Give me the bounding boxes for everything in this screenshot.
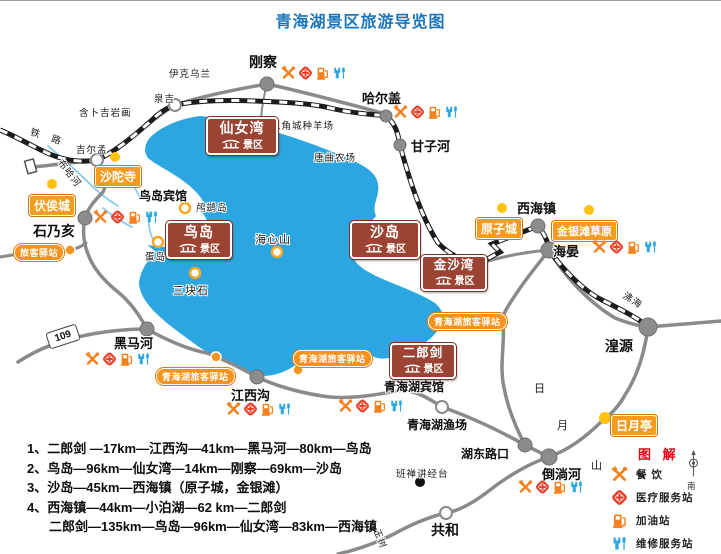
- repair-icon: [277, 401, 292, 417]
- town-label-huangyuan: 湟源: [605, 336, 633, 356]
- town-label-xihaizhen: 西海镇: [517, 198, 556, 217]
- poi-dot-yuanzicheng: [497, 203, 507, 213]
- town-label-gangcha: 刚察: [249, 52, 277, 72]
- poi-badge-yuanzicheng: 原子城: [476, 218, 522, 239]
- repair-icon: [144, 209, 159, 225]
- medical-icon: [355, 398, 370, 414]
- scenic-badge-niaodao: 鸟岛 景区: [166, 221, 232, 259]
- route-list: 1、二郎剑 —17km—江西沟—41km—黑马河—80km—鸟岛 2、鸟岛—96…: [27, 439, 377, 537]
- poi-badge-fusicheng: 伏俟城: [29, 195, 75, 216]
- fuel-icon: [372, 398, 387, 414]
- dining-icon: [518, 479, 533, 495]
- label-dandao: 蛋岛: [145, 249, 166, 263]
- label-shan: 山: [591, 457, 603, 473]
- town-dot-haergai: [380, 110, 392, 122]
- label-ri: 日: [534, 380, 546, 396]
- road-end-cap: [25, 159, 37, 174]
- label-sankuaishi: 三块石: [173, 282, 209, 298]
- label-sanjiaocheng: 三角城种羊场: [271, 118, 334, 132]
- dining-icon: [338, 398, 353, 414]
- town-label-gonghe: 共和: [431, 520, 459, 540]
- station-badge-southwest: 青海湖旅客驿站: [156, 368, 235, 385]
- town-dot-ganzihe: [394, 139, 406, 151]
- town-label-heimahe: 黑马河: [114, 333, 153, 352]
- route-line-1: 1、二郎剑 —17km—江西沟—41km—黑马河—80km—鸟岛: [27, 439, 377, 459]
- route-line-2: 2、鸟岛—96km—仙女湾—14km—刚察—69km—沙岛: [27, 459, 377, 479]
- legend-item-repair: 维修服务站: [611, 535, 694, 552]
- town-dot-gangcha: [260, 77, 274, 91]
- repair-icon: [643, 239, 658, 255]
- medical-icon: [243, 401, 258, 417]
- island-marker-haixinshan: [272, 247, 282, 257]
- medical-icon: [298, 65, 313, 81]
- poi-dot-jinyintan: [584, 205, 594, 215]
- station-dot-southwest: [211, 352, 221, 362]
- fuel-icon: [626, 239, 641, 255]
- scenic-suffix: 景区: [200, 240, 220, 255]
- temple-icon: [403, 363, 422, 373]
- services-daotanghe: [518, 479, 584, 495]
- label-tangqu: 唐曲农场: [314, 150, 356, 164]
- fuel-icon: [260, 401, 275, 417]
- scenic-badge-erlangjian: 二郎剑 景区: [390, 343, 456, 379]
- legend-label: 餐 饮: [636, 467, 663, 482]
- repair-icon: [332, 65, 347, 81]
- legend-label: 维修服务站: [636, 536, 694, 551]
- label-yuchang: 青海湖渔场: [407, 416, 467, 433]
- services-gangcha: [281, 65, 347, 81]
- compass-icon: [687, 449, 700, 479]
- road-huangyuan-daotanghe: [551, 327, 648, 456]
- repair-icon: [611, 535, 628, 552]
- poi-dot-riyueting: [599, 412, 611, 424]
- temple-icon: [221, 138, 241, 149]
- label-luciniao: 鸬鹚岛: [196, 200, 228, 214]
- fuel-icon: [127, 209, 142, 225]
- route-line-3: 3、沙岛—45km—西海镇（原子城，金银滩）: [27, 478, 377, 498]
- scenic-name: 沙岛: [370, 225, 400, 240]
- fuel-icon: [611, 512, 628, 529]
- label-banchan: 班禅讲经台: [396, 466, 449, 480]
- scenic-suffix: 景区: [243, 136, 263, 151]
- temple-icon: [364, 242, 384, 253]
- legend-title: 图 解: [638, 444, 680, 463]
- scenic-name: 仙女湾: [220, 121, 265, 136]
- fuel-icon: [552, 479, 567, 495]
- medical-icon: [110, 209, 125, 225]
- route-line-5: 二郎剑—135km—鸟岛—96km—仙女湾—83km—西海镇: [27, 517, 377, 537]
- town-label-hudonglukou: 湖东路口: [461, 445, 509, 462]
- scenic-badge-xiannvwan: 仙女湾 景区: [206, 117, 278, 155]
- scenic-name: 金沙湾: [434, 259, 475, 272]
- dining-icon: [281, 65, 296, 81]
- medical-icon: [609, 239, 624, 255]
- town-label-haiyan: 海晏: [553, 241, 579, 260]
- scenic-name: 鸟岛: [184, 225, 214, 240]
- station-dot-west: [65, 245, 75, 255]
- station-badge-east: 青海湖旅客驿站: [428, 313, 507, 330]
- station-badge-south: 青海湖旅客驿站: [293, 350, 372, 367]
- legend-label: 加油站: [636, 513, 671, 528]
- town-dot-daotanghe: [541, 449, 557, 465]
- island-marker-dandao: [153, 237, 163, 247]
- repair-icon: [444, 104, 459, 120]
- town-dot-jiangxigou: [250, 370, 264, 384]
- repair-icon: [389, 398, 404, 414]
- legend-item-fuel: 加油站: [611, 512, 671, 529]
- dining-icon: [93, 209, 108, 225]
- services-haiyan: [592, 239, 658, 255]
- road-huangyuan-east: [648, 321, 721, 327]
- town-label-shinaihai: 石乃亥: [33, 221, 75, 241]
- label-haixinshan: 海心山: [255, 231, 291, 247]
- island-marker-sankuaishi: [190, 268, 200, 278]
- town-label-ganzihe: 甘子河: [411, 136, 450, 155]
- dining-icon: [611, 466, 628, 483]
- label-yue: 月: [557, 417, 569, 433]
- island-marker-luciniao: [180, 203, 190, 213]
- poi-badge-riyueting: 日月亭: [611, 415, 657, 436]
- hotel-label-qinghaihu: 青海湖宾馆: [384, 378, 444, 395]
- road-east-shore: [502, 250, 549, 445]
- label-jiermeng: 吉尔孟: [76, 142, 108, 156]
- label-quanji: 泉吉: [154, 91, 175, 105]
- scenic-name: 二郎剑: [403, 347, 444, 360]
- services-haergai: [393, 104, 459, 120]
- dining-icon: [393, 104, 408, 120]
- hotel-label-niaodao: 鸟岛宾馆: [139, 187, 187, 204]
- poi-badge-shatuosi: 沙陀寺: [95, 166, 141, 187]
- poi-dot-fusicheng: [47, 179, 57, 189]
- fuel-icon: [315, 65, 330, 81]
- dining-icon: [226, 401, 241, 417]
- route-line-4: 4、西海镇—44km—小泊湖—62 km—二郎剑: [27, 498, 377, 518]
- dining-icon: [85, 351, 100, 367]
- stop-circle-gonghe: [440, 507, 452, 519]
- legend-label: 医疗服务站: [636, 490, 694, 505]
- label-yikewulan: 伊克乌兰: [169, 66, 211, 80]
- medical-icon: [535, 479, 550, 495]
- scenic-suffix: 景区: [455, 272, 475, 287]
- services-heimahe: [85, 351, 151, 367]
- repair-icon: [136, 351, 151, 367]
- poi-badge-jinyintan: 金银滩草原: [552, 221, 617, 241]
- tourist-map: 青海湖景区旅游导览图: [0, 0, 721, 554]
- town-dot-hudonglukou: [518, 438, 532, 452]
- services-jiangxigou: [226, 401, 292, 417]
- station-badge-west: 旅客驿站: [14, 244, 64, 261]
- dining-icon: [592, 239, 607, 255]
- town-dot-shinaihai: [78, 211, 92, 225]
- temple-icon: [178, 242, 198, 253]
- legend-item-medical: 医疗服务站: [611, 489, 694, 506]
- services-qinghaihu-hotel: [338, 398, 404, 414]
- legend-item-dining: 餐 饮: [611, 466, 663, 483]
- medical-icon: [611, 489, 628, 506]
- town-dot-huangyuan: [639, 318, 657, 336]
- stop-circle-yuchang: [436, 401, 448, 413]
- fuel-icon: [119, 351, 134, 367]
- scenic-badge-jinshawan: 金沙湾 景区: [421, 255, 487, 291]
- label-hanbuji: 含卜吉岩画: [79, 105, 132, 119]
- medical-icon: [102, 351, 117, 367]
- scenic-badge-shadao: 沙岛 景区: [350, 221, 420, 259]
- medical-icon: [410, 104, 425, 120]
- repair-icon: [569, 479, 584, 495]
- scenic-suffix: 景区: [386, 240, 406, 255]
- temple-icon: [434, 275, 453, 285]
- town-dot-xihaizhen: [531, 219, 545, 233]
- poi-dot-shatuosi: [110, 152, 120, 162]
- scenic-suffix: 景区: [424, 360, 444, 375]
- fuel-icon: [427, 104, 442, 120]
- services-shinaihai: [93, 209, 159, 225]
